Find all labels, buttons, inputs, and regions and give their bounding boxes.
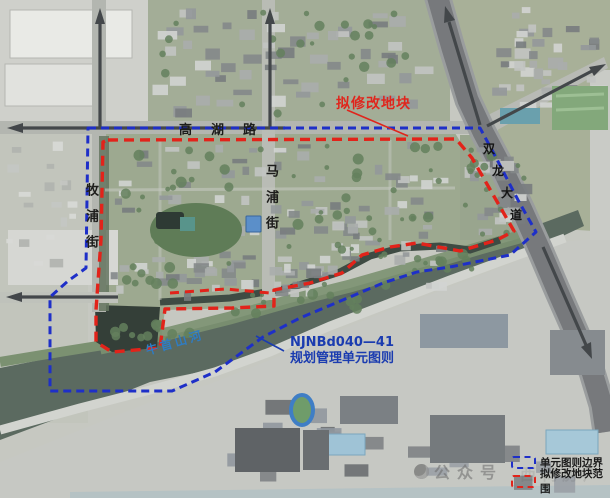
blue-roof-building	[246, 216, 261, 232]
callout-unit-plan-code: NJNBd040—41 规划管理单元图则	[276, 335, 408, 367]
callout-modify-plot: 拟修改地块	[336, 93, 411, 113]
legend-item-modify-scope: 拟修改地块范围	[511, 473, 610, 489]
map-legend: 单元图则边界 拟修改地块范围	[511, 454, 610, 492]
road-label-gaohu: 高湖路	[179, 119, 275, 138]
street-label-mapu: 马浦街	[261, 164, 280, 242]
dashed-rect-icon-blue	[511, 456, 536, 469]
unit-plan-title: 规划管理单元图则	[276, 351, 408, 367]
running-track	[291, 395, 313, 425]
pool	[546, 430, 598, 454]
dashed-rect-icon-red	[511, 475, 536, 488]
street-label-mupu: 牧浦街	[81, 183, 100, 261]
central-park	[150, 203, 242, 257]
planning-map: 高湖路 牧浦街 马浦街 双 龙 大 道 牛首山河 拟修改地块 NJNBd040—…	[0, 0, 610, 498]
watermark: 公众号	[414, 459, 503, 483]
unit-plan-code: NJNBd040—41	[276, 335, 408, 351]
wechat-logo-icon	[414, 464, 429, 479]
park-pond	[156, 212, 184, 229]
watermark-text: 公众号	[434, 459, 503, 483]
